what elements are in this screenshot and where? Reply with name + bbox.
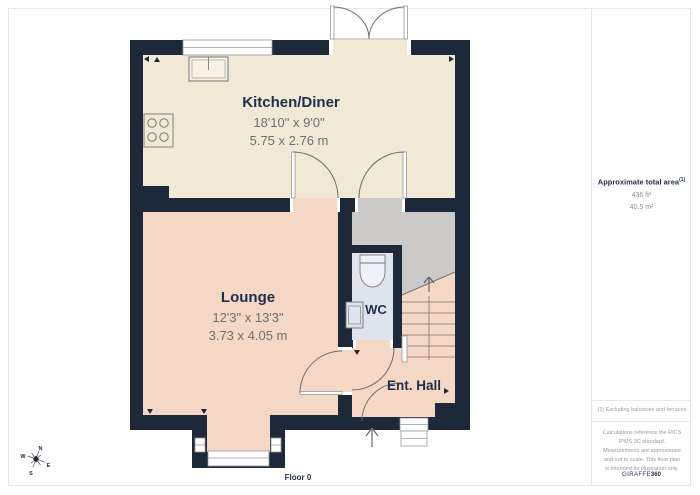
total-area-block: Approximate total area(1) 436 ft² 40.5 m…	[592, 177, 691, 211]
lounge-door-gap	[338, 350, 352, 392]
compass-w: W	[20, 454, 26, 460]
room-label-hall: Ent. Hall	[387, 378, 441, 393]
compass-e: E	[47, 463, 51, 469]
divider-top	[592, 400, 691, 401]
wc-door-gap	[353, 340, 390, 348]
room-dims-kitchen-imperial: 18'10" x 9'0"	[253, 115, 325, 130]
sink-icon	[189, 57, 228, 81]
footnote: (1) Excluding balconies and terraces	[596, 407, 688, 413]
french-doors	[331, 6, 408, 39]
floor-label: Floor 0	[262, 473, 334, 482]
room-dims-kitchen-metric: 5.75 x 2.76 m	[250, 133, 329, 148]
stove-icon	[144, 114, 173, 147]
bay-floor	[207, 415, 270, 452]
disclaimer: Calculations reference the RICS IPMS 3C …	[602, 429, 682, 474]
landing-floor	[352, 212, 455, 245]
entry-arrow	[366, 428, 378, 447]
alcove-floor	[333, 38, 407, 58]
stair-newel	[402, 336, 407, 362]
landing-floor-2	[402, 245, 455, 272]
brand-name: GIRAFFE	[622, 472, 651, 478]
brand-suffix: 360	[651, 472, 661, 478]
basin-icon	[346, 302, 363, 328]
compass-s: S	[29, 471, 33, 477]
room-label-kitchen: Kitchen/Diner	[242, 94, 340, 111]
brand-logo: GIRAFFE360	[592, 472, 691, 478]
room-dims-lounge-metric: 3.73 x 4.05 m	[209, 328, 288, 343]
total-area-metric: 40.5 m²	[592, 204, 691, 211]
compass: N W E S	[20, 446, 50, 477]
total-area-superscript: (1)	[679, 177, 685, 183]
compass-n: N	[39, 446, 43, 452]
room-dims-lounge-imperial: 12'3" x 13'3"	[212, 310, 284, 325]
divider-bottom	[592, 421, 691, 422]
total-area-title: Approximate total area(1)	[592, 177, 691, 187]
room-label-lounge: Lounge	[221, 289, 275, 306]
info-sidebar: Approximate total area(1) 436 ft² 40.5 m…	[591, 8, 691, 486]
total-area-title-text: Approximate total area	[598, 178, 679, 187]
bay-window	[208, 451, 269, 466]
room-label-wc: WC	[365, 302, 387, 317]
door-opening-b	[358, 198, 402, 212]
door-opening-a	[293, 198, 337, 212]
total-area-imperial: 436 ft²	[592, 192, 691, 199]
toilet-icon	[360, 255, 385, 287]
